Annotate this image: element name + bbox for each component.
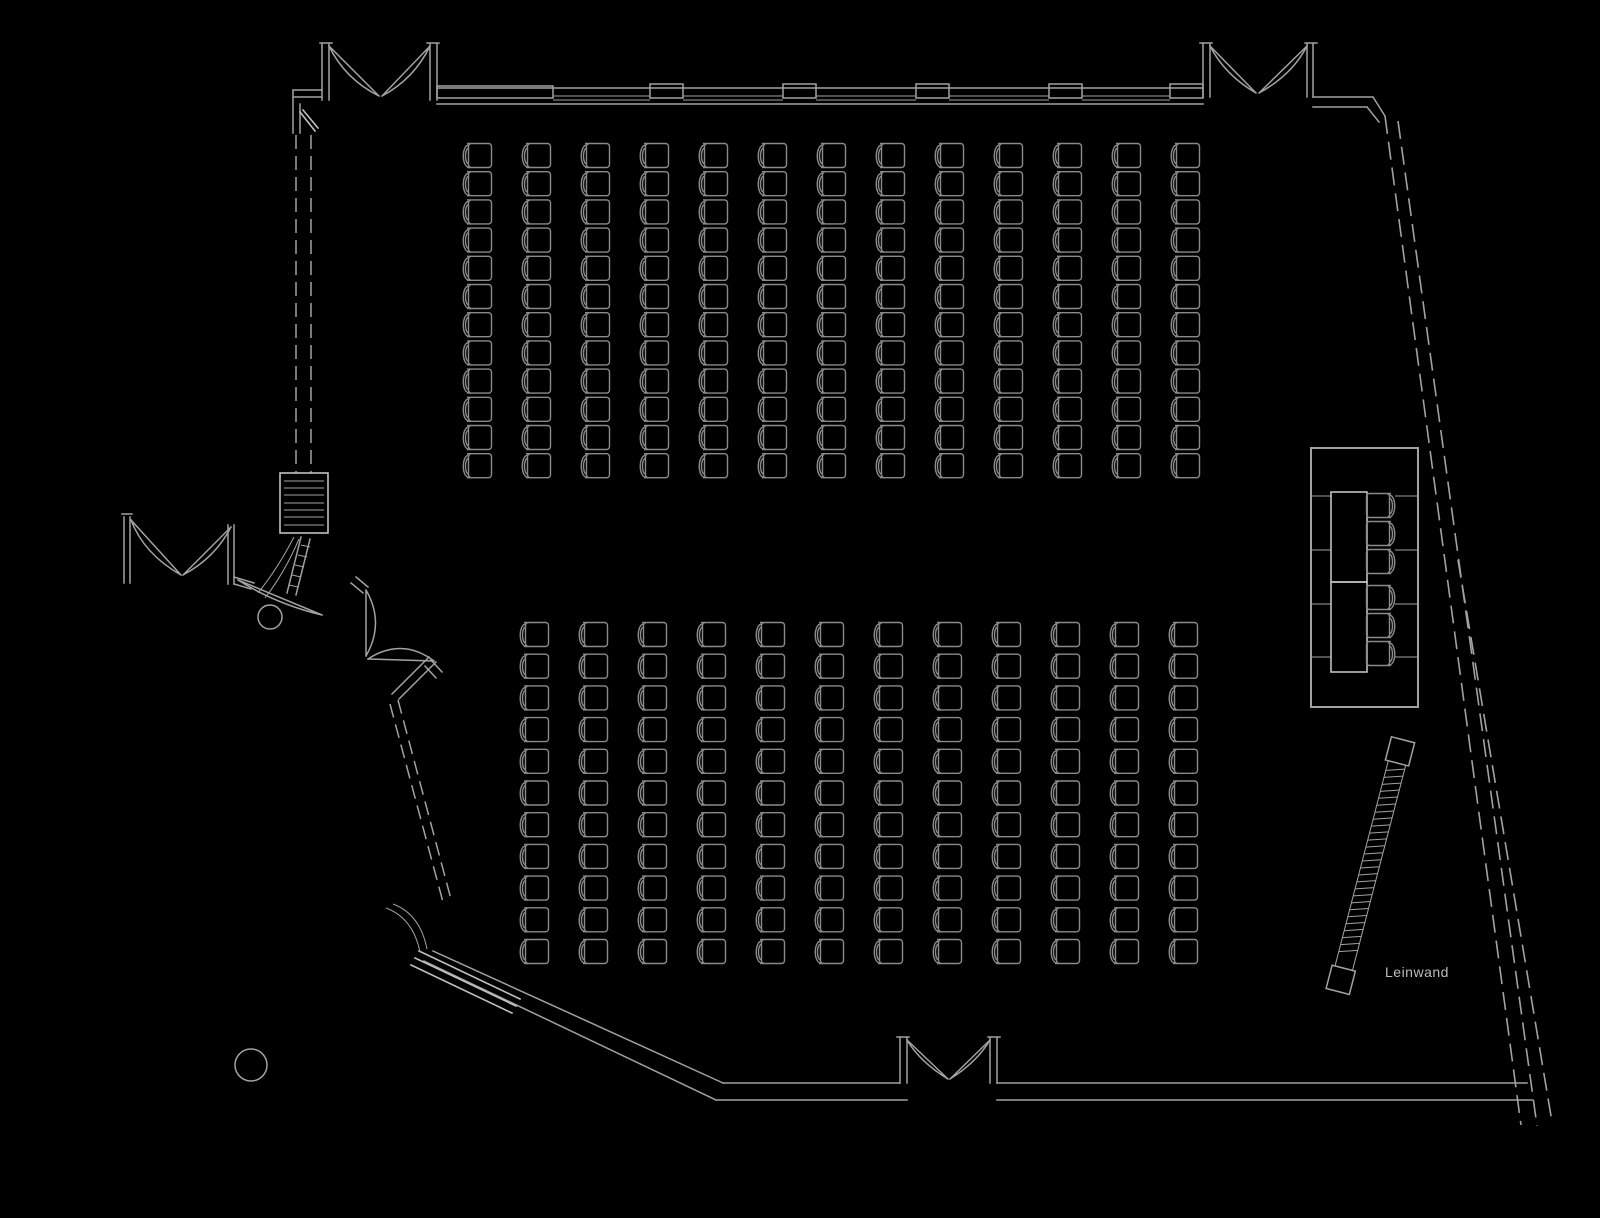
audience-seat [520,876,548,900]
audience-seat [935,426,963,450]
audience-seat [758,256,786,280]
audience-seat [876,144,904,168]
audience-seat [1051,876,1079,900]
audience-seat [756,844,784,868]
audience-seat [463,172,491,196]
single-door-bottom-left [411,951,520,1013]
podium-dividers [1311,496,1418,657]
audience-seat [638,623,666,647]
screen-foot-bottom [1326,965,1355,994]
audience-seat [520,749,548,773]
audience-seat [935,256,963,280]
audience-seat [874,718,902,742]
audience-seat [638,813,666,837]
audience-seat [638,654,666,678]
audience-seat [817,172,845,196]
audience-seat [876,285,904,309]
seating-block-bottom [520,623,1197,964]
audience-seat [1171,341,1199,365]
window-pillar [650,84,683,98]
audience-seat [638,686,666,710]
speaker-chair [1367,586,1395,610]
audience-seat [874,940,902,964]
audience-seat [579,654,607,678]
audience-seat [876,454,904,478]
audience-seat [758,200,786,224]
audience-seat [520,654,548,678]
audience-seat [520,623,548,647]
speaker-chair [1367,522,1395,546]
audience-seat [640,313,668,337]
audience-seat [933,686,961,710]
audience-seat [933,908,961,932]
audience-seat [1171,228,1199,252]
audience-seat [1110,876,1138,900]
audience-seat [994,172,1022,196]
window-pillar [783,84,816,98]
audience-seat [520,813,548,837]
audience-seat [699,172,727,196]
audience-seat [463,369,491,393]
audience-seat [1053,313,1081,337]
audience-seat [579,718,607,742]
audience-seat [817,200,845,224]
audience-seat [935,313,963,337]
audience-seat [815,749,843,773]
audience-seat [581,228,609,252]
audience-seat [522,228,550,252]
audience-seat [815,623,843,647]
audience-seat [640,369,668,393]
audience-seat [1169,813,1197,837]
audience-seat [638,749,666,773]
audience-seat [638,781,666,805]
audience-seat [697,908,725,932]
audience-seat [581,313,609,337]
audience-seat [874,686,902,710]
audience-seat [581,285,609,309]
audience-seat [876,369,904,393]
audience-seat [638,876,666,900]
audience-seat [581,256,609,280]
audience-seat [638,940,666,964]
wall-top-right-stub [1313,97,1385,122]
audience-seat [1112,228,1140,252]
audience-seat [815,781,843,805]
audience-seat [463,144,491,168]
audience-seat [1112,397,1140,421]
audience-seat [579,749,607,773]
audience-seat [992,623,1020,647]
audience-seat [697,718,725,742]
audience-seat [463,397,491,421]
audience-seat [640,228,668,252]
audience-seat [935,200,963,224]
audience-seat [1171,200,1199,224]
audience-seat [640,144,668,168]
audience-seat [817,454,845,478]
movable-partition [258,135,328,598]
wall-bottom [716,1083,1532,1100]
audience-seat [815,654,843,678]
audience-seat [1112,369,1140,393]
audience-seat [1110,940,1138,964]
audience-seat [756,781,784,805]
audience-seat [933,781,961,805]
audience-seat [697,940,725,964]
audience-seat [1169,908,1197,932]
audience-seat [874,844,902,868]
audience-seat [994,285,1022,309]
audience-seat [756,654,784,678]
audience-seat [992,718,1020,742]
audience-seat [1169,781,1197,805]
audience-seat [817,256,845,280]
audience-seat [815,940,843,964]
audience-seat [697,654,725,678]
audience-seat [581,172,609,196]
audience-seat [876,228,904,252]
speaker-table [1331,582,1367,672]
audience-seat [876,426,904,450]
audience-seat [933,623,961,647]
audience-seat [522,172,550,196]
audience-seat [699,256,727,280]
audience-seat [579,844,607,868]
audience-seat [933,749,961,773]
column-circle-upper [258,605,282,629]
audience-seat [699,397,727,421]
audience-seat [1171,397,1199,421]
audience-seat [876,200,904,224]
audience-seat [758,397,786,421]
audience-seat [935,228,963,252]
audience-seat [815,876,843,900]
audience-seat [699,426,727,450]
audience-seat [520,686,548,710]
audience-seat [581,369,609,393]
audience-seat [1110,749,1138,773]
audience-seat [1169,686,1197,710]
audience-seat [874,781,902,805]
audience-seat [1171,285,1199,309]
audience-seat [1169,940,1197,964]
audience-seat [876,172,904,196]
audience-seat [933,654,961,678]
speaker-chairs [1367,494,1395,666]
audience-seat [1110,654,1138,678]
double-door-top-right [1200,43,1317,97]
audience-seat [581,426,609,450]
left-entrance [122,514,442,699]
speaker-tables [1331,492,1367,672]
speaker-chair [1367,550,1395,574]
audience-seat [994,369,1022,393]
audience-seat [874,908,902,932]
audience-seat [817,285,845,309]
audience-seat [992,844,1020,868]
audience-seat [992,781,1020,805]
audience-seat [992,876,1020,900]
double-door-left-entrance [122,514,254,589]
audience-seat [1171,172,1199,196]
double-door-bottom [897,1037,1000,1083]
audience-seat [994,256,1022,280]
speaker-chair [1367,614,1395,638]
audience-seat [522,397,550,421]
audience-seat [758,285,786,309]
audience-seat [874,749,902,773]
audience-seat [935,144,963,168]
audience-seat [522,256,550,280]
audience-seat [581,200,609,224]
audience-seat [1051,781,1079,805]
audience-seat [994,144,1022,168]
audience-seat [463,426,491,450]
audience-seat [1169,718,1197,742]
audience-seat [994,228,1022,252]
screen-hatching [1339,765,1405,957]
audience-seat [579,813,607,837]
audience-seat [579,781,607,805]
podium-platform [1311,448,1418,707]
audience-seat [756,940,784,964]
audience-seat [756,686,784,710]
partition-track [296,135,311,473]
audience-seat [699,228,727,252]
audience-seat [522,144,550,168]
screen-foot-top [1385,737,1414,766]
audience-seat [756,623,784,647]
audience-seat [463,200,491,224]
audience-seat [1053,454,1081,478]
audience-seat [579,908,607,932]
audience-seat [1053,426,1081,450]
audience-seat [699,341,727,365]
audience-seat [640,172,668,196]
audience-seat [817,313,845,337]
audience-seat [1112,256,1140,280]
audience-seat [522,426,550,450]
audience-seat [1171,313,1199,337]
audience-seat [640,454,668,478]
audience-seat [758,172,786,196]
audience-seat [1169,623,1197,647]
audience-seat [697,813,725,837]
audience-seat [1171,454,1199,478]
audience-seat [935,369,963,393]
audience-seat [520,844,548,868]
audience-seat [1051,813,1079,837]
audience-seat [994,426,1022,450]
floor-plan-canvas: Leinwand [0,0,1600,1218]
audience-seat [758,341,786,365]
audience-seat [1112,341,1140,365]
audience-seat [579,623,607,647]
audience-seat [1169,654,1197,678]
audience-seat [933,940,961,964]
audience-seat [1112,426,1140,450]
audience-seat [992,749,1020,773]
audience-seat [758,228,786,252]
audience-seat [992,686,1020,710]
audience-seat [1053,144,1081,168]
audience-seat [756,749,784,773]
audience-seat [640,285,668,309]
audience-seat [992,908,1020,932]
audience-seat [520,908,548,932]
audience-seat [1110,844,1138,868]
audience-seat [1053,228,1081,252]
audience-seat [756,718,784,742]
audience-seat [815,718,843,742]
audience-seat [522,313,550,337]
audience-seat [697,623,725,647]
audience-seat [522,454,550,478]
audience-seat [1112,144,1140,168]
audience-seat [522,341,550,365]
audience-seat [994,313,1022,337]
audience-seat [699,200,727,224]
audience-seat [935,172,963,196]
audience-seat [815,844,843,868]
audience-seat [699,454,727,478]
audience-seat [522,285,550,309]
door-swing-arc [386,904,427,952]
audience-seat [1112,454,1140,478]
audience-seat [522,200,550,224]
audience-seat [817,397,845,421]
audience-seat [1051,686,1079,710]
audience-seat [638,908,666,932]
audience-seat [817,341,845,365]
audience-seat [1110,908,1138,932]
audience-seat [463,256,491,280]
audience-seat [933,876,961,900]
audience-seat [520,718,548,742]
wall-bottom-left-slanted [386,700,723,1100]
audience-seat [581,144,609,168]
audience-seat [1053,285,1081,309]
window-pillar [1049,84,1082,98]
audience-seat [638,844,666,868]
audience-seat [1171,256,1199,280]
audience-seat [463,454,491,478]
window-pillar [1170,84,1203,98]
audience-seat [815,686,843,710]
audience-seat [640,426,668,450]
audience-seat [992,813,1020,837]
audience-seat [992,940,1020,964]
audience-seat [994,397,1022,421]
wall-left-connector [392,657,436,699]
audience-seat [1051,749,1079,773]
audience-seat [1053,369,1081,393]
audience-seat [817,369,845,393]
audience-seat [1051,940,1079,964]
audience-seat [935,341,963,365]
audience-seat [992,654,1020,678]
audience-seat [697,844,725,868]
audience-seat [876,313,904,337]
audience-seat [522,369,550,393]
audience-seat [817,228,845,252]
audience-seat [758,454,786,478]
audience-seat [874,813,902,837]
seating-block-top [463,144,1199,478]
audience-seat [1051,844,1079,868]
audience-seat [817,426,845,450]
audience-seat [1169,876,1197,900]
audience-seat [1110,718,1138,742]
audience-seat [758,369,786,393]
audience-seat [758,426,786,450]
column-circle-lower [235,1049,267,1081]
audience-seat [935,454,963,478]
audience-seat [1110,813,1138,837]
corner-door-leaf [300,110,318,131]
audience-seat [520,940,548,964]
audience-seat [1110,781,1138,805]
wall-top-window-band [437,84,1203,104]
audience-seat [1110,686,1138,710]
audience-seat [1051,908,1079,932]
audience-seat [1112,172,1140,196]
audience-seat [640,341,668,365]
audience-seat [933,844,961,868]
audience-seat [1053,397,1081,421]
audience-seat [1171,426,1199,450]
audience-seat [638,718,666,742]
audience-seat [876,256,904,280]
double-door-top-left [320,43,439,100]
audience-seat [758,144,786,168]
audience-seat [874,623,902,647]
audience-seat [815,908,843,932]
audience-seat [815,813,843,837]
audience-seat [699,144,727,168]
audience-seat [935,285,963,309]
audience-seat [697,876,725,900]
audience-seat [1169,749,1197,773]
screen-label: Leinwand [1385,964,1449,980]
audience-seat [1171,144,1199,168]
head-table-podium [1311,448,1418,707]
audience-seat [1112,313,1140,337]
audience-seat [463,228,491,252]
audience-seat [758,313,786,337]
audience-seat [994,454,1022,478]
audience-seat [933,813,961,837]
audience-seat [933,718,961,742]
audience-seat [994,200,1022,224]
audience-seat [1051,623,1079,647]
audience-seat [1053,172,1081,196]
audience-seat [579,940,607,964]
audience-seat [581,341,609,365]
audience-seat [1051,654,1079,678]
audience-seat [756,813,784,837]
audience-seat [581,397,609,421]
audience-seat [994,341,1022,365]
speaker-chair [1367,494,1395,518]
audience-seat [463,285,491,309]
audience-seat [699,285,727,309]
audience-seat [697,686,725,710]
audience-seat [697,749,725,773]
audience-seat [1112,200,1140,224]
audience-seat [699,369,727,393]
